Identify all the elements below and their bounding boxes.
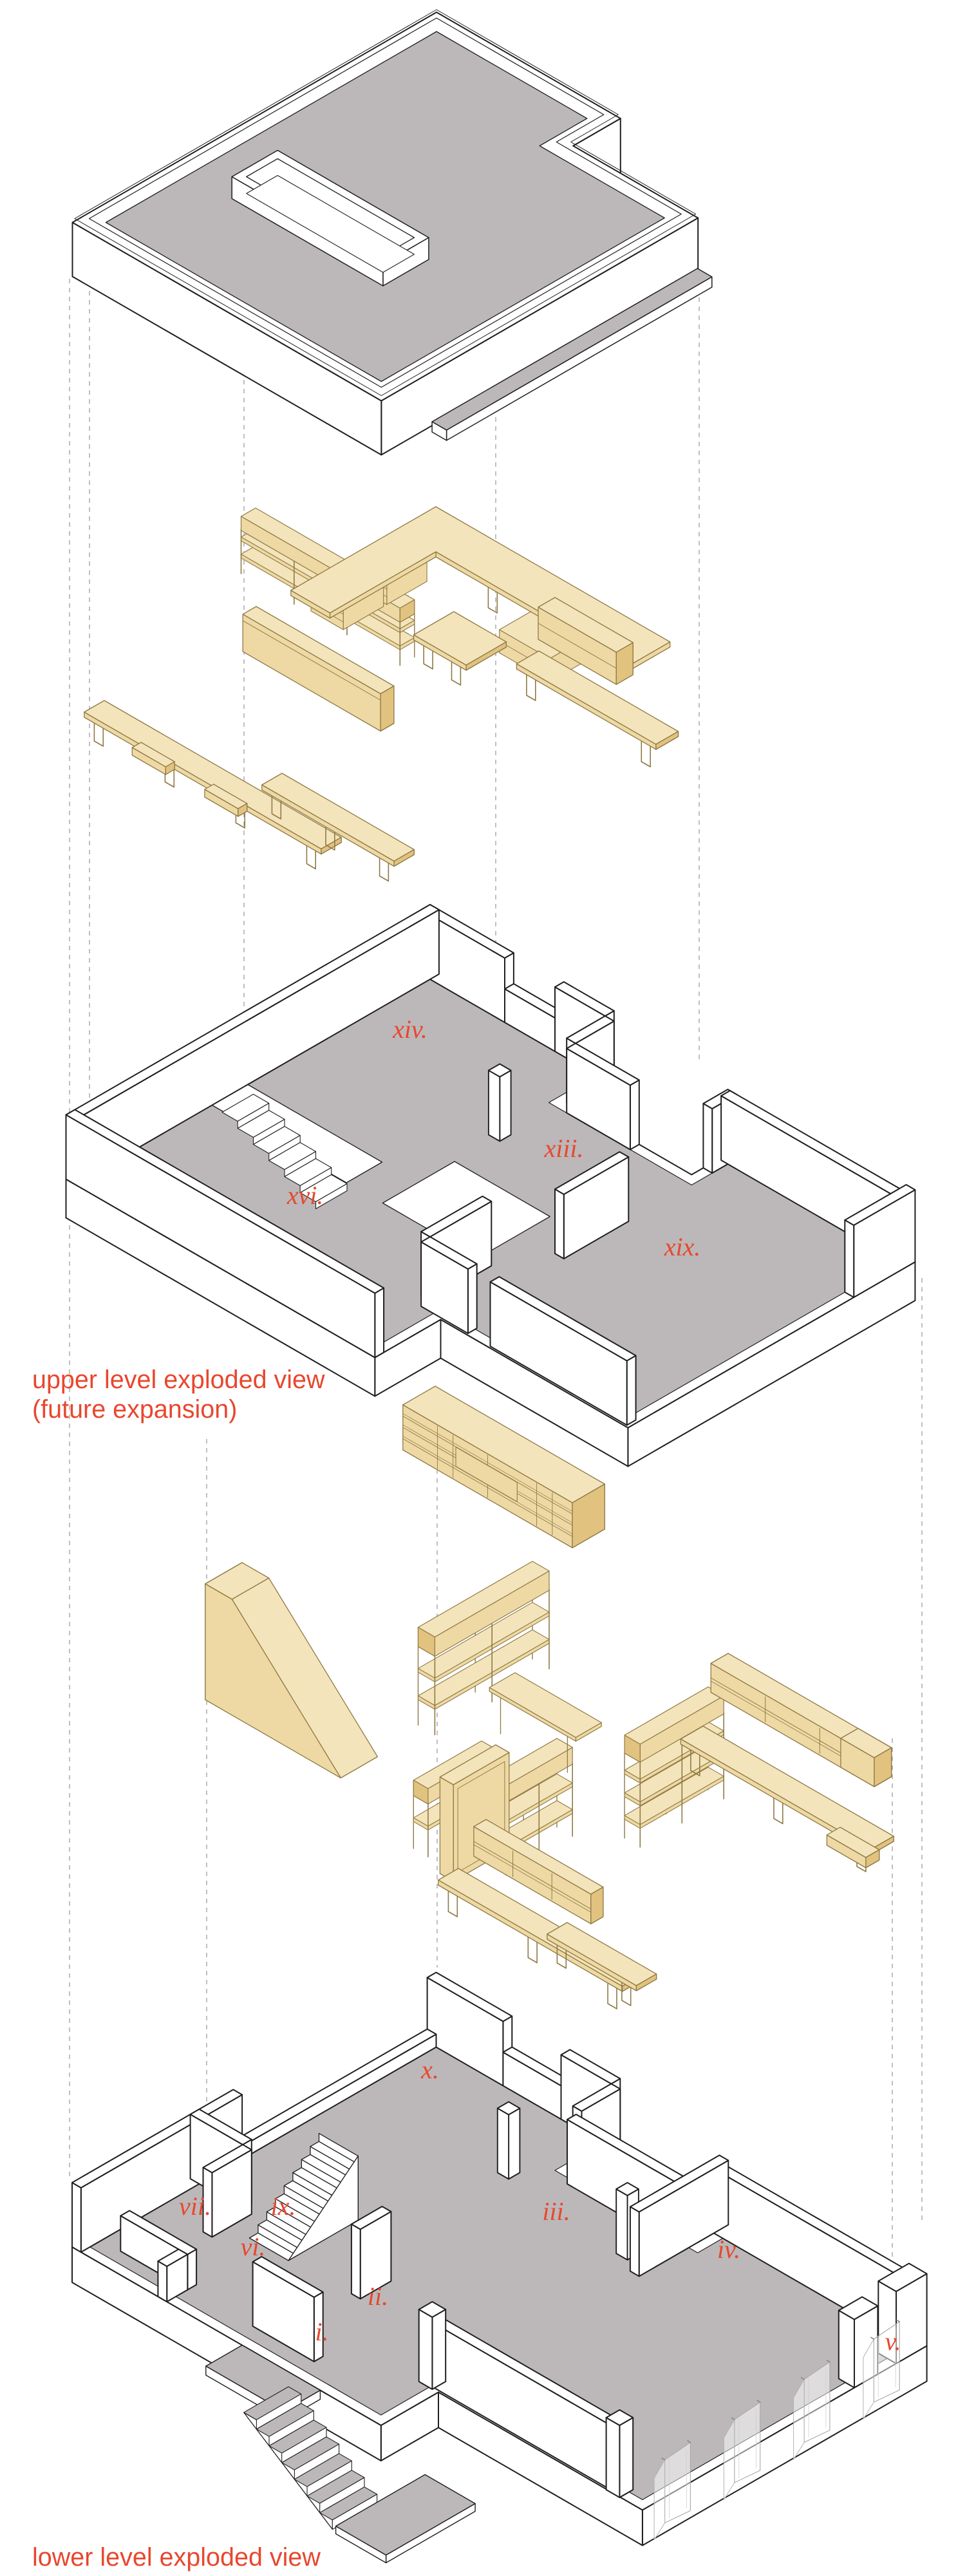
- svg-text:x.: x.: [420, 2055, 439, 2084]
- svg-text:iv.: iv.: [717, 2235, 740, 2264]
- svg-text:i.: i.: [315, 2317, 328, 2346]
- svg-text:ii.: ii.: [368, 2282, 388, 2311]
- svg-text:upper level exploded view: upper level exploded view: [32, 1366, 325, 1394]
- svg-text:xvi.: xvi.: [286, 1181, 324, 1210]
- svg-text:xix.: xix.: [664, 1232, 701, 1261]
- svg-text:xiii.: xiii.: [543, 1134, 583, 1163]
- svg-text:v.: v.: [885, 2327, 901, 2356]
- svg-text:ix.: ix.: [271, 2192, 296, 2221]
- svg-text:vi.: vi.: [241, 2232, 266, 2261]
- svg-text:xiv.: xiv.: [392, 1015, 427, 1044]
- svg-text:(future expansion): (future expansion): [32, 1395, 237, 1424]
- svg-text:iii.: iii.: [542, 2197, 570, 2226]
- svg-text:vii.: vii.: [179, 2192, 211, 2221]
- svg-text:lower level exploded view: lower level exploded view: [32, 2543, 321, 2571]
